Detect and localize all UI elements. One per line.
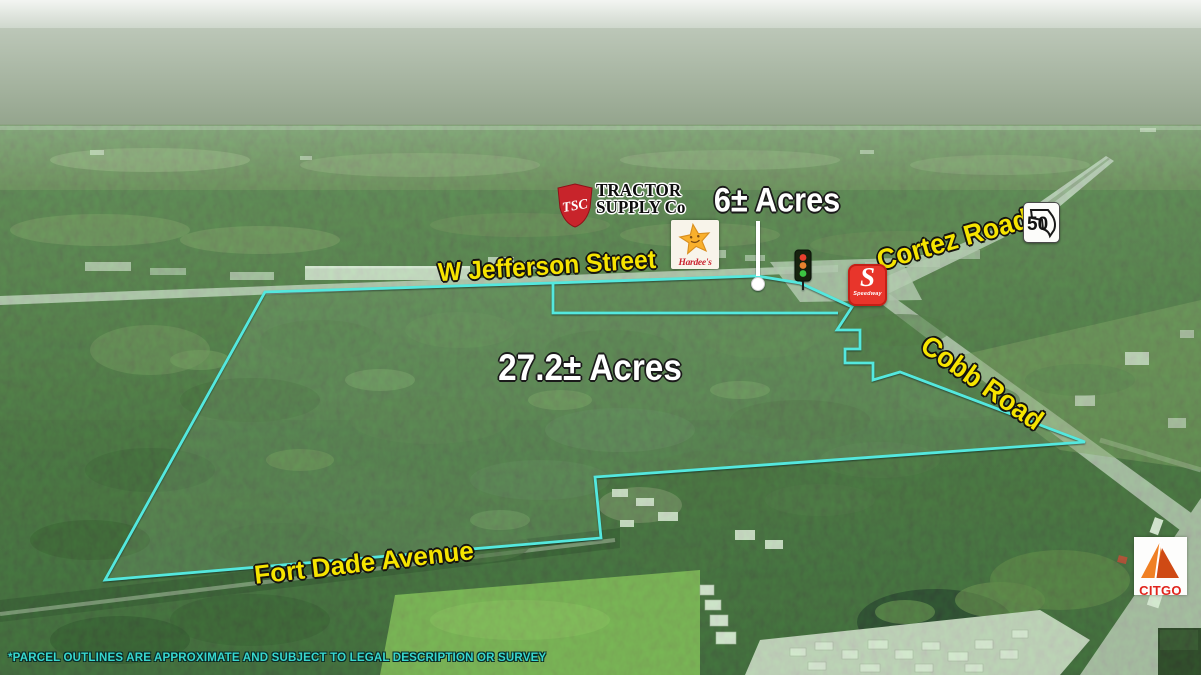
disclaimer-text: *PARCEL OUTLINES ARE APPROXIMATE AND SUB… — [8, 652, 546, 664]
tsc-line2: SUPPLY Co — [596, 199, 685, 216]
parcel-outline — [105, 276, 1085, 580]
speedway-logo: S Speedway — [848, 264, 887, 306]
hardees-wordmark: Hardee's — [671, 258, 719, 268]
location-pin-dot — [752, 278, 765, 291]
acreage-label-27: 27.2± Acres — [498, 347, 682, 389]
speedway-wordmark: Speedway — [848, 291, 887, 297]
citgo-logo: CITGO — [1134, 537, 1187, 595]
hardees-star-icon — [678, 223, 712, 255]
annotation-overlay — [0, 0, 1201, 675]
hardees-logo: Hardee's — [671, 220, 719, 269]
aerial-parcel-map: 27.2± Acres 6± Acres W Jefferson Street … — [0, 0, 1201, 675]
route-50-shield: 50 — [1023, 202, 1060, 243]
speedway-initial: S — [848, 264, 887, 290]
citgo-trimark-icon — [1134, 537, 1187, 581]
citgo-wordmark: CITGO — [1134, 583, 1187, 598]
route-50-number: 50 — [1027, 214, 1048, 236]
parcel-divider-line — [553, 284, 838, 313]
tsc-shield-icon: TSC — [556, 182, 594, 229]
traffic-light-icon — [795, 250, 811, 290]
acreage-label-6: 6± Acres — [714, 182, 840, 221]
